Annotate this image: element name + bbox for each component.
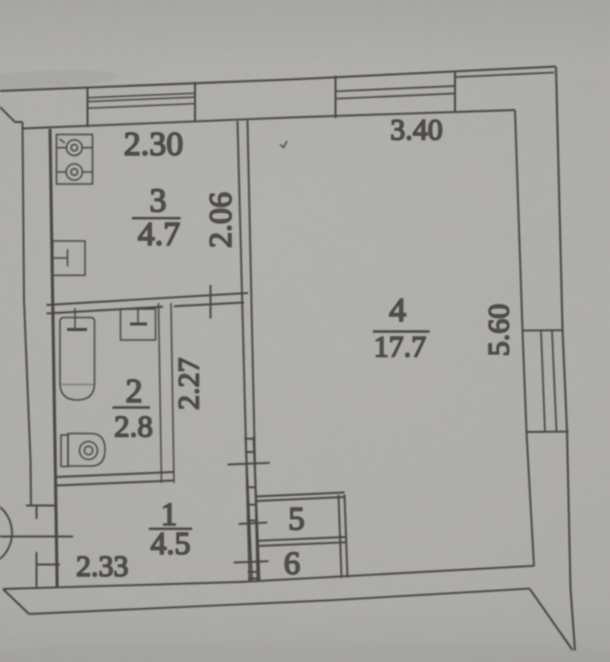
svg-text:3.40: 3.40 [390,114,443,147]
svg-text:2: 2 [126,373,143,410]
svg-text:5.60: 5.60 [483,304,516,357]
svg-text:2.27: 2.27 [173,357,206,410]
svg-text:5: 5 [288,502,305,538]
svg-text:4: 4 [389,292,406,329]
svg-text:2.33: 2.33 [76,550,129,583]
svg-text:4.7: 4.7 [138,216,181,253]
svg-text:3: 3 [150,183,167,220]
svg-text:4.5: 4.5 [151,525,191,561]
svg-text:2.06: 2.06 [202,192,238,248]
svg-text:6: 6 [284,546,301,582]
svg-text:2.8: 2.8 [114,409,153,444]
svg-text:17.7: 17.7 [374,331,427,364]
svg-text:2.30: 2.30 [124,126,184,163]
